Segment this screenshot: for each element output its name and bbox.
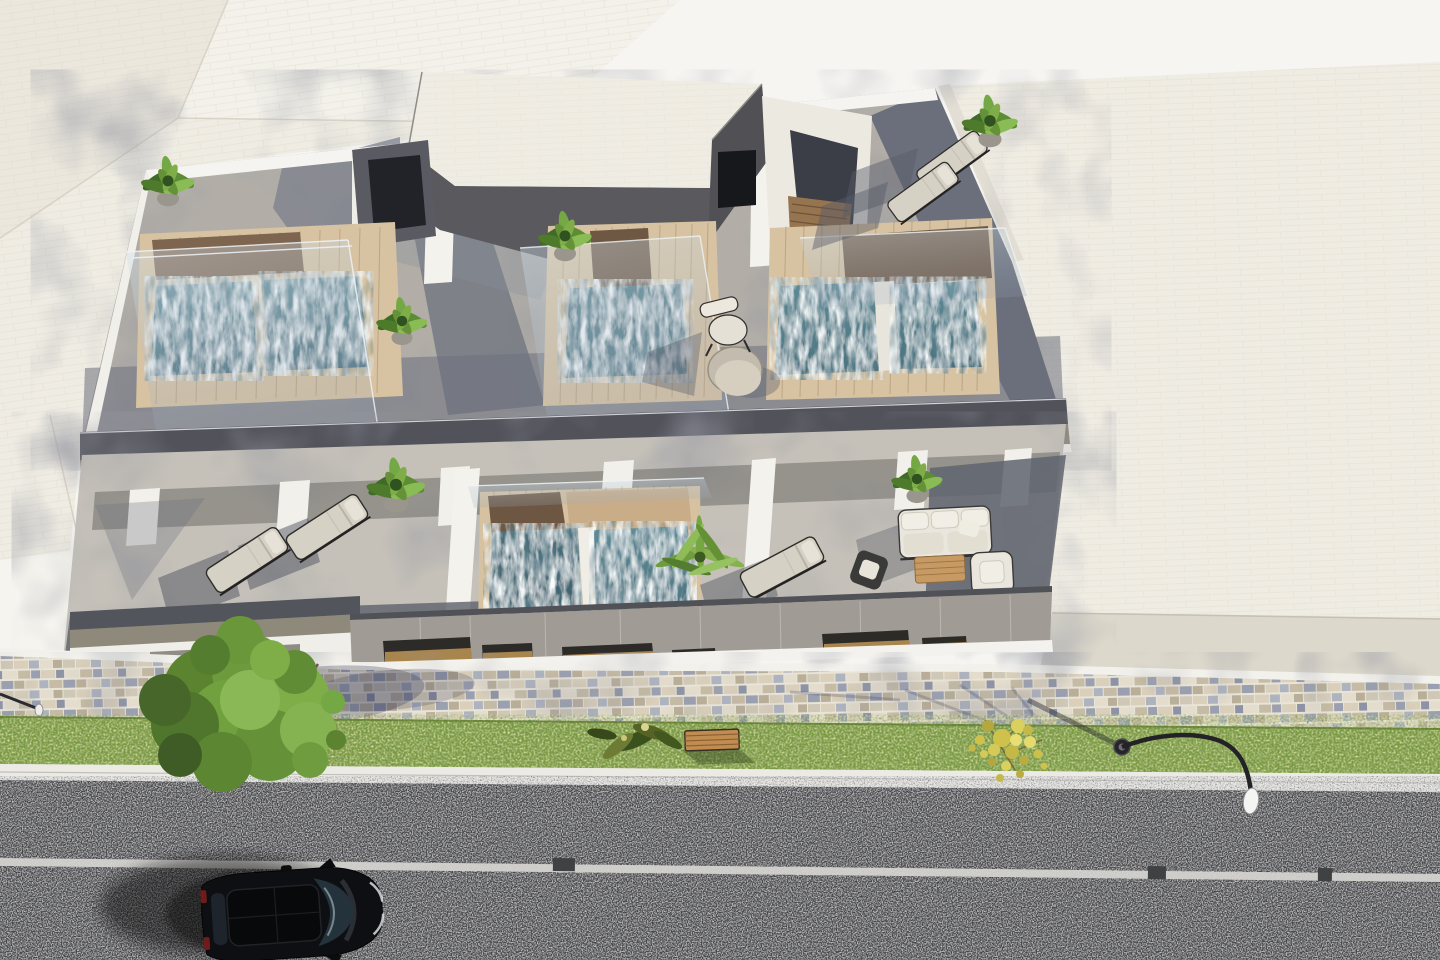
lane-line-gap xyxy=(1318,868,1332,881)
taillight xyxy=(203,937,210,950)
street-lamp-head-left xyxy=(35,704,43,716)
coffee-table xyxy=(914,555,965,584)
rooftop-pool-center xyxy=(520,210,730,436)
round-table-top xyxy=(715,360,761,396)
outdoor-sofa xyxy=(898,506,992,560)
glass-balustrade xyxy=(126,240,378,444)
bulkhead-doorway xyxy=(718,150,756,208)
main-building xyxy=(62,72,1072,684)
render-canvas xyxy=(0,0,1440,960)
stairwell-opening xyxy=(368,155,426,232)
roof-antenna xyxy=(281,865,292,872)
rooftop-pool-pair-right xyxy=(766,218,1028,400)
taillight xyxy=(200,890,207,903)
lane-line-gap xyxy=(553,858,575,871)
lane-line-gap xyxy=(1148,866,1166,879)
